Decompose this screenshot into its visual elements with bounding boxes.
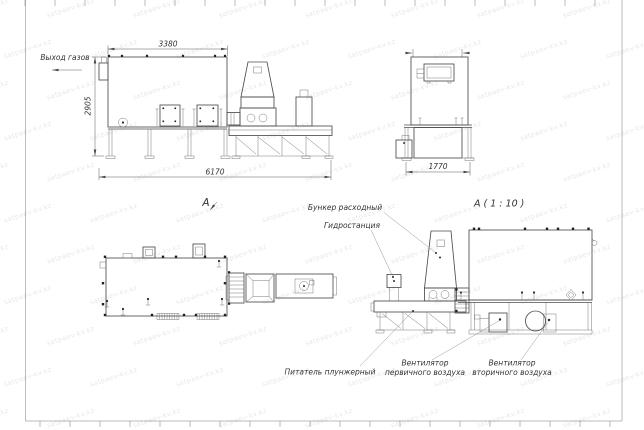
secondary-fan-label-line1: Вентилятор: [489, 359, 536, 368]
primary-fan-label-line1: Вентилятор: [402, 359, 449, 368]
front-base: [402, 118, 474, 161]
view-a-label: А: [201, 197, 209, 209]
plunger-feeder-label: Питатель плунжерный: [285, 368, 376, 377]
leader-lines: [360, 213, 549, 367]
feeder-plan: [226, 271, 337, 305]
platform-box-2: [193, 105, 223, 126]
dim-1770: 1770: [406, 162, 470, 176]
mount-strip-1: [157, 314, 179, 320]
feed-hopper-b: [425, 231, 457, 301]
dim-3380: 3380: [108, 40, 228, 57]
secondary-air-fan: [526, 311, 557, 332]
furnace-body: [108, 57, 227, 127]
dim-2905: 2905: [84, 57, 107, 156]
inspection-window: [417, 64, 454, 83]
hydro-station-box: [387, 275, 401, 302]
engineering-drawing-sheet: satpaev-kv.kzsatpaev-kv.kzsatpaev-kv.kzs…: [0, 0, 644, 430]
plan-view: [100, 244, 337, 320]
drive-box: [296, 97, 312, 126]
sheet-bottom-ticks: [40, 421, 610, 427]
platform-pins: [460, 291, 584, 300]
dim-6170: 6170: [99, 160, 331, 180]
flange-port: [119, 118, 128, 127]
dim-2905-label: 2905: [84, 96, 93, 115]
sheet-top-ticks: [25, 0, 595, 6]
furnace-legs: [109, 129, 227, 156]
dim-1770-label: 1770: [428, 162, 447, 171]
gas-outlet-label: Выход газов: [40, 53, 89, 62]
front-side-box: [396, 136, 412, 159]
secondary-fan-label-line2: вторичного воздуха: [472, 368, 552, 377]
feed-hopper-side: [227, 62, 276, 126]
primary-air-fan: [475, 313, 508, 332]
view-a-arrow: [210, 202, 217, 210]
plan-anchor-pins: [105, 260, 224, 315]
detail-scale-label: А ( 1 : 10 ): [473, 199, 524, 210]
plan-bolts: [102, 256, 226, 317]
hydro-station-label: Гидростанция: [324, 221, 381, 230]
lifting-hook: [592, 239, 597, 246]
platform-box-1: [156, 105, 185, 126]
mount-strip-2: [197, 314, 219, 320]
flange-diamond: [566, 290, 576, 301]
gas-outlet-stub: [99, 63, 108, 80]
side-view-a: 3380 2905 6170 Выход газов А: [40, 40, 333, 211]
front-view: 1770 А ( 1 : 10 ): [396, 49, 524, 210]
primary-fan-label-line2: первичного воздуха: [385, 368, 465, 377]
dim-6170-label: 6170: [205, 168, 224, 177]
feeder-conveyor-side: [229, 90, 333, 159]
side-view-b: Бункер расходный Гидростанция Питатель п…: [285, 203, 597, 377]
hopper-label: Бункер расходный: [308, 203, 382, 212]
dim-3380-label: 3380: [158, 40, 177, 49]
feeder-conveyor-b: [371, 288, 469, 333]
top-reference-arrows: [405, 49, 470, 57]
furnace-body-b: [469, 230, 592, 300]
plan-body: [106, 258, 227, 316]
drawing-canvas: 3380 2905 6170 Выход газов А: [0, 0, 644, 430]
